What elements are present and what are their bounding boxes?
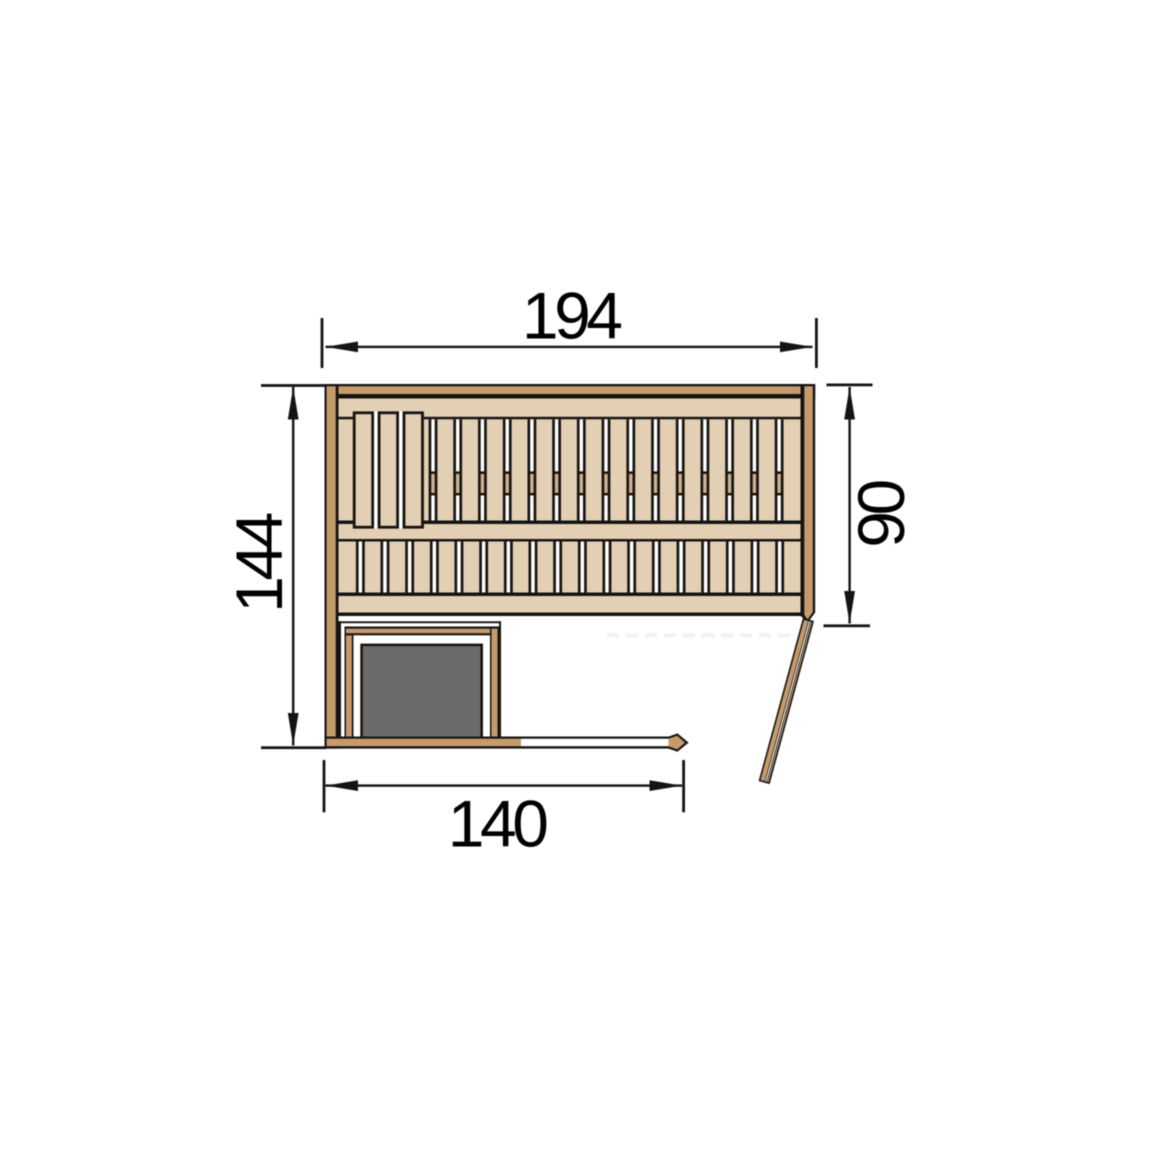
svg-text:90: 90 <box>844 481 918 548</box>
svg-text:194: 194 <box>522 279 621 353</box>
svg-text:140: 140 <box>448 787 547 861</box>
svg-text:144: 144 <box>222 513 296 612</box>
